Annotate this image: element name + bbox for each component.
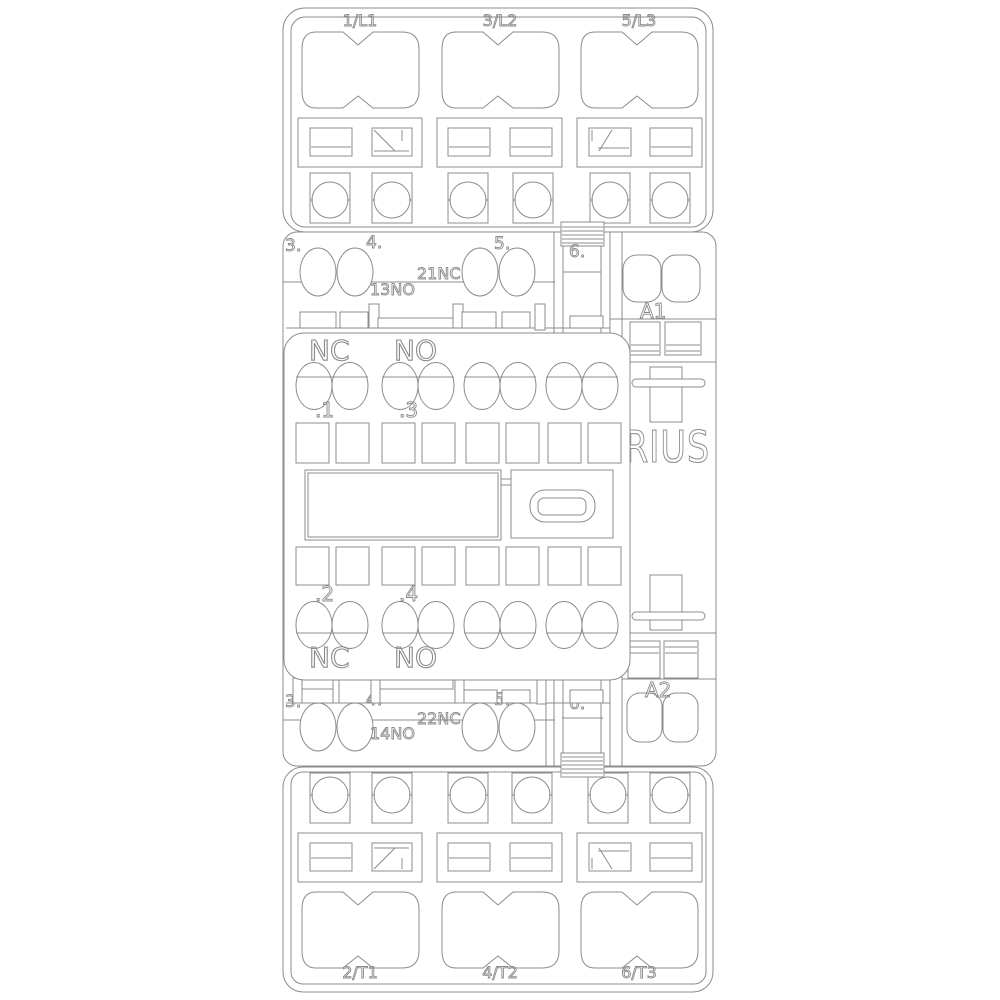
load-terminal-label-2T1: 2/T1 bbox=[320, 964, 400, 982]
front-block-contact-1-label: .1 bbox=[315, 399, 334, 422]
front-block-nc-label-top: NC bbox=[309, 335, 350, 367]
aux-contact-hole bbox=[546, 363, 582, 410]
coil-terminal-label-a2: A2 bbox=[645, 679, 671, 702]
front-block-contact-2-label: .2 bbox=[315, 583, 334, 606]
front-block-no-label-top: NO bbox=[394, 335, 437, 367]
aux-number-4-top: 4. bbox=[366, 234, 382, 254]
aux-contact-hole bbox=[464, 602, 500, 649]
aux-contact-hole bbox=[546, 602, 582, 649]
aux-contact-hole bbox=[582, 363, 618, 410]
front-block-no-label-bottom: NO bbox=[394, 642, 437, 674]
aux-contact-hole bbox=[332, 363, 368, 410]
front-block-contact-3-label: .3 bbox=[399, 399, 418, 422]
front-aux-switch-block bbox=[0, 0, 1000, 1000]
load-terminal-label-4T2: 4/T2 bbox=[460, 964, 540, 982]
aux-number-6-top: 6. bbox=[569, 243, 585, 263]
front-block-contact-4-label: .4 bbox=[399, 583, 418, 606]
front-block-nc-label-bottom: NC bbox=[309, 642, 350, 674]
contactor-top-view-drawing: SIRIUS 3. 4. 5. 6. bbox=[0, 0, 1000, 1000]
aux-number-3-top: 3. bbox=[285, 237, 301, 257]
aux-contact-hole bbox=[464, 363, 500, 410]
aux-contact-hole bbox=[582, 602, 618, 649]
load-terminal-label-6T3: 6/T3 bbox=[599, 964, 679, 982]
aux-number-5-top: 5. bbox=[494, 235, 510, 255]
aux-contact-hole bbox=[500, 363, 536, 410]
no-terminal-label-14: 14NO bbox=[370, 725, 415, 743]
nc-terminal-label-22: 22NC bbox=[417, 710, 461, 728]
nc-terminal-label-21: 21NC bbox=[417, 265, 461, 283]
line-terminal-label-1L1: 1/L1 bbox=[320, 12, 400, 30]
coil-terminal-label-a1: A1 bbox=[640, 300, 666, 323]
line-terminal-label-5L3: 5/L3 bbox=[599, 12, 679, 30]
aux-contact-hole bbox=[500, 602, 536, 649]
line-terminal-label-3L2: 3/L2 bbox=[460, 12, 540, 30]
no-terminal-label-13: 13NO bbox=[370, 281, 415, 299]
aux-contact-hole bbox=[418, 363, 454, 410]
